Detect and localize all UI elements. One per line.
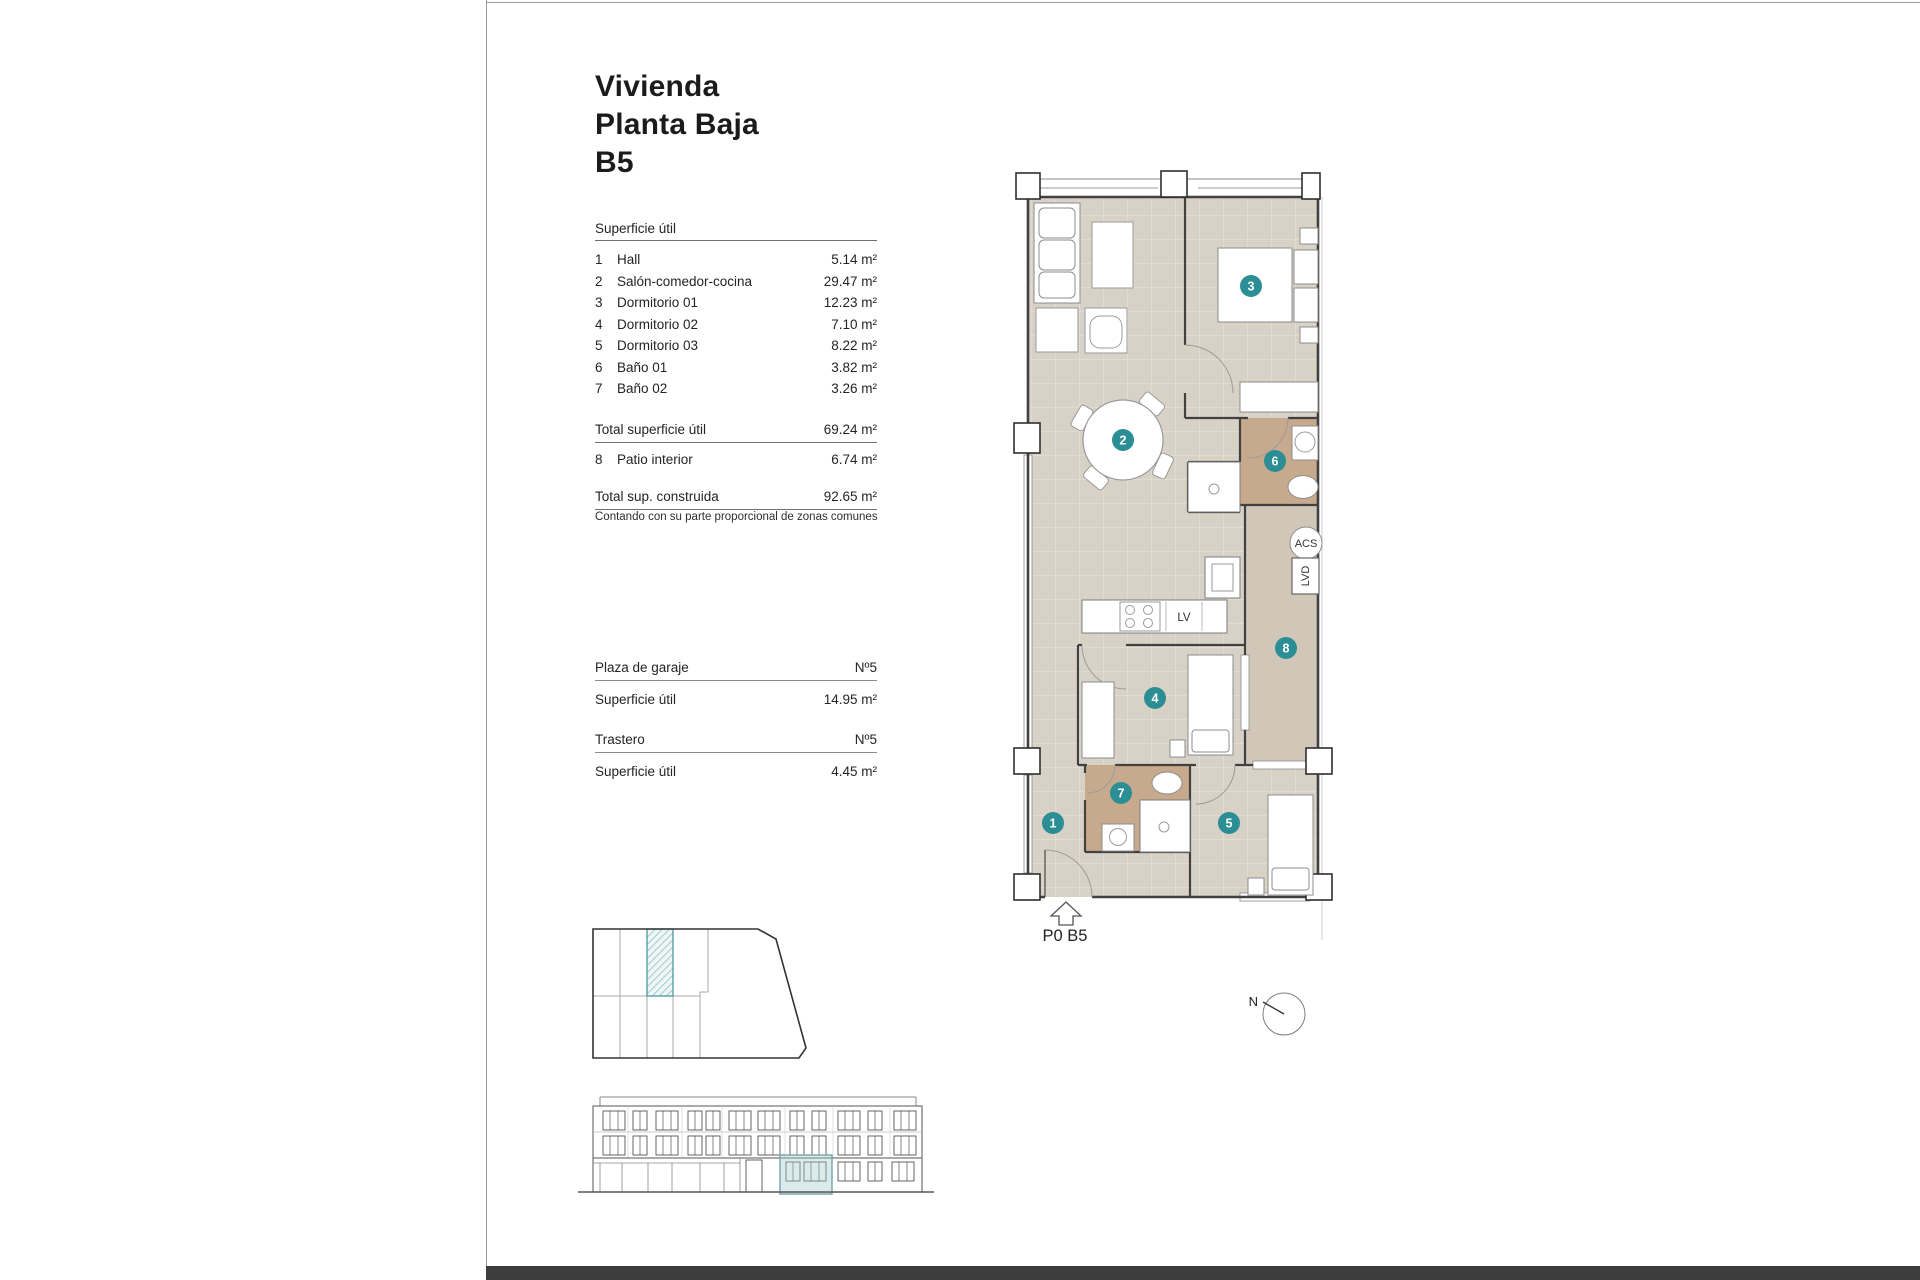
row-num: 5 [595, 338, 617, 353]
row-label: Dormitorio 01 [617, 295, 824, 310]
room-marker-6: 6 [1272, 455, 1279, 469]
surface-table-header-label: Superficie útil [595, 221, 877, 236]
row-label: Patio interior [617, 452, 831, 467]
surface-table-header: Superficie útil [595, 221, 877, 241]
title-line-3: B5 [595, 144, 759, 182]
floor-plan: LV ACS LVD 1 2 [1005, 135, 1345, 950]
site-key-plan [575, 915, 825, 1070]
row-num: 6 [595, 360, 617, 375]
sofa [1034, 203, 1080, 303]
row-label: Baño 02 [617, 381, 831, 396]
row-num: 1 [595, 252, 617, 267]
garage-area-value: 14.95 m² [824, 692, 877, 707]
row-value: 6.74 m² [831, 452, 877, 467]
garage-area-label: Superficie útil [595, 692, 824, 707]
table-row: 4Dormitorio 027.10 m² [595, 317, 877, 332]
highlighted-unit-cell [647, 929, 673, 996]
total-value: 69.24 m² [824, 422, 877, 437]
frame-bottom-bar [486, 1266, 1920, 1280]
compass: N [1235, 980, 1319, 1050]
storage-area-label: Superficie útil [595, 764, 831, 779]
room-marker-7: 7 [1118, 787, 1125, 801]
total-built-row: Total sup. construida 92.65 m² [595, 489, 877, 510]
garage-number: Nº5 [855, 660, 877, 675]
table-row: 2Salón-comedor-cocina29.47 m² [595, 274, 877, 289]
coffee-table [1092, 222, 1133, 288]
row-num: 3 [595, 295, 617, 310]
title-line-2: Planta Baja [595, 106, 759, 144]
cooktop [1120, 602, 1160, 631]
parapet-line [600, 1097, 916, 1106]
compass-north-label: N [1249, 994, 1258, 1009]
fridge [1205, 557, 1240, 598]
room-marker-3: 3 [1248, 280, 1255, 294]
room-marker-2: 2 [1120, 434, 1127, 448]
room-marker-1: 1 [1050, 817, 1057, 831]
room-marker-5: 5 [1226, 817, 1233, 831]
row-label: Dormitorio 02 [617, 317, 831, 332]
row-num: 8 [595, 452, 617, 467]
row-value: 3.26 m² [831, 381, 877, 396]
table-row: 5Dormitorio 038.22 m² [595, 338, 877, 353]
side-table [1036, 308, 1078, 352]
row-num: 2 [595, 274, 617, 289]
storage-area-value: 4.45 m² [831, 764, 877, 779]
frame-left-line [486, 0, 487, 1280]
row-value: 12.23 m² [824, 295, 877, 310]
garage-area-row: Superficie útil 14.95 m² [595, 692, 877, 707]
row-value: 7.10 m² [831, 317, 877, 332]
desk-shelf [1240, 382, 1318, 412]
row-value: 8.22 m² [831, 338, 877, 353]
row-label: Dormitorio 03 [617, 338, 831, 353]
unit-label: P0 B5 [1043, 927, 1088, 945]
total-built-label: Total sup. construida [595, 489, 824, 504]
closet [1082, 682, 1114, 758]
row-label: Hall [617, 252, 831, 267]
total-built-value: 92.65 m² [824, 489, 877, 504]
room-marker-4: 4 [1152, 692, 1159, 706]
row-value: 3.82 m² [831, 360, 877, 375]
storage-number: Nº5 [855, 732, 877, 747]
lvd-label: LVD [1300, 566, 1312, 587]
window-band-bed02-patio [1241, 655, 1249, 730]
room-marker-8: 8 [1283, 642, 1290, 656]
frame-top-line [486, 2, 1920, 3]
row-label: Salón-comedor-cocina [617, 274, 824, 289]
garage-label: Plaza de garaje [595, 660, 855, 675]
table-row: 6Baño 013.82 m² [595, 360, 877, 375]
table-row: 3Dormitorio 0112.23 m² [595, 295, 877, 310]
total-useful-row: Total superficie útil 69.24 m² [595, 422, 877, 443]
patio-row: 8 Patio interior 6.74 m² [595, 452, 877, 467]
dishwasher-label: LV [1177, 612, 1191, 624]
garage-row: Plaza de garaje Nº5 [595, 660, 877, 681]
row-label: Baño 01 [617, 360, 831, 375]
plan-sheet: Vivienda Planta Baja B5 Superficie útil … [0, 0, 1920, 1280]
storage-area-row: Superficie útil 4.45 m² [595, 764, 877, 779]
title-line-1: Vivienda [595, 68, 759, 106]
row-value: 29.47 m² [824, 274, 877, 289]
table-row: 7Baño 023.26 m² [595, 381, 877, 396]
row-num: 4 [595, 317, 617, 332]
page-title: Vivienda Planta Baja B5 [595, 68, 759, 182]
table-row: 1Hall5.14 m² [595, 252, 877, 267]
table-footnote: Contando con su parte proporcional de zo… [595, 511, 895, 523]
storage-row: Trastero Nº5 [595, 732, 877, 753]
row-value: 5.14 m² [831, 252, 877, 267]
entrance-door [746, 1160, 762, 1192]
porch-columns [593, 1158, 740, 1192]
armchair [1085, 308, 1127, 353]
entrance-arrow-icon [1051, 902, 1081, 925]
window-band-bed03-patio [1253, 761, 1310, 769]
building-elevation [570, 1088, 940, 1208]
compass-needle [1263, 1002, 1284, 1014]
acs-label: ACS [1295, 538, 1318, 550]
storage-label: Trastero [595, 732, 855, 747]
total-label: Total superficie útil [595, 422, 824, 437]
highlighted-unit-elevation [780, 1155, 832, 1194]
row-num: 7 [595, 381, 617, 396]
